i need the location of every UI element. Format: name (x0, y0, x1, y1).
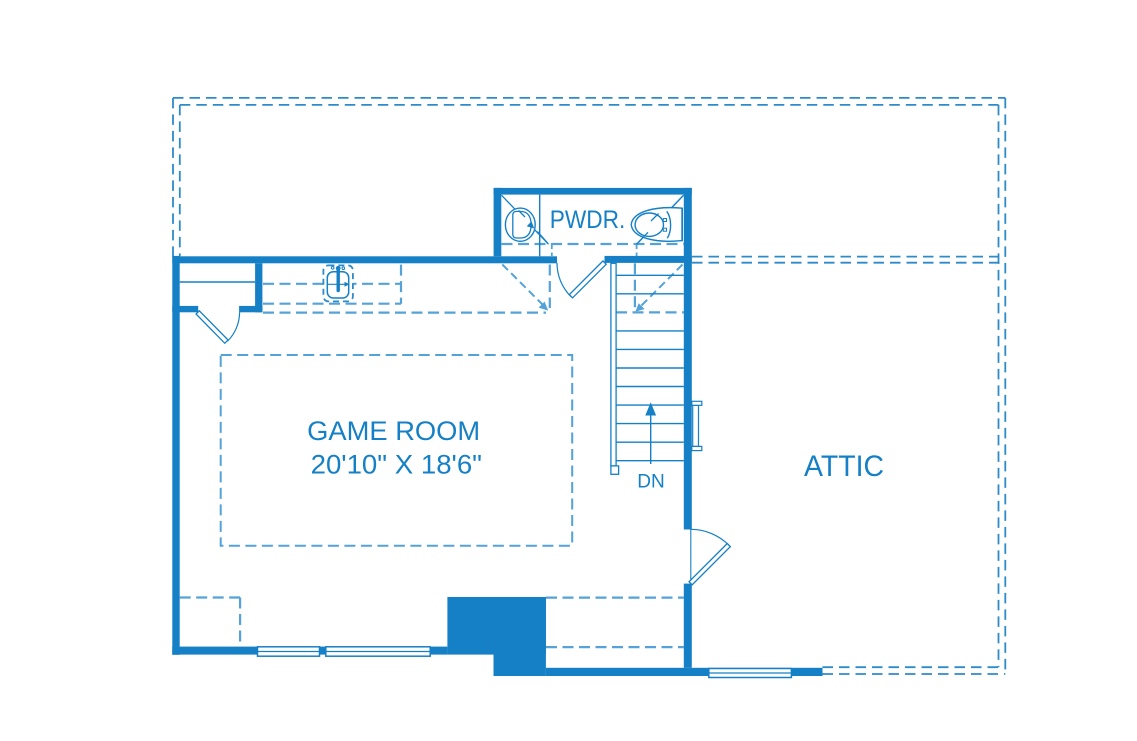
svg-text:20'10" X 18'6": 20'10" X 18'6" (311, 449, 482, 480)
svg-text:PWDR.: PWDR. (550, 206, 626, 234)
svg-text:ATTIC: ATTIC (804, 450, 884, 483)
svg-text:GAME ROOM: GAME ROOM (307, 415, 480, 446)
svg-text:DN: DN (637, 472, 665, 493)
